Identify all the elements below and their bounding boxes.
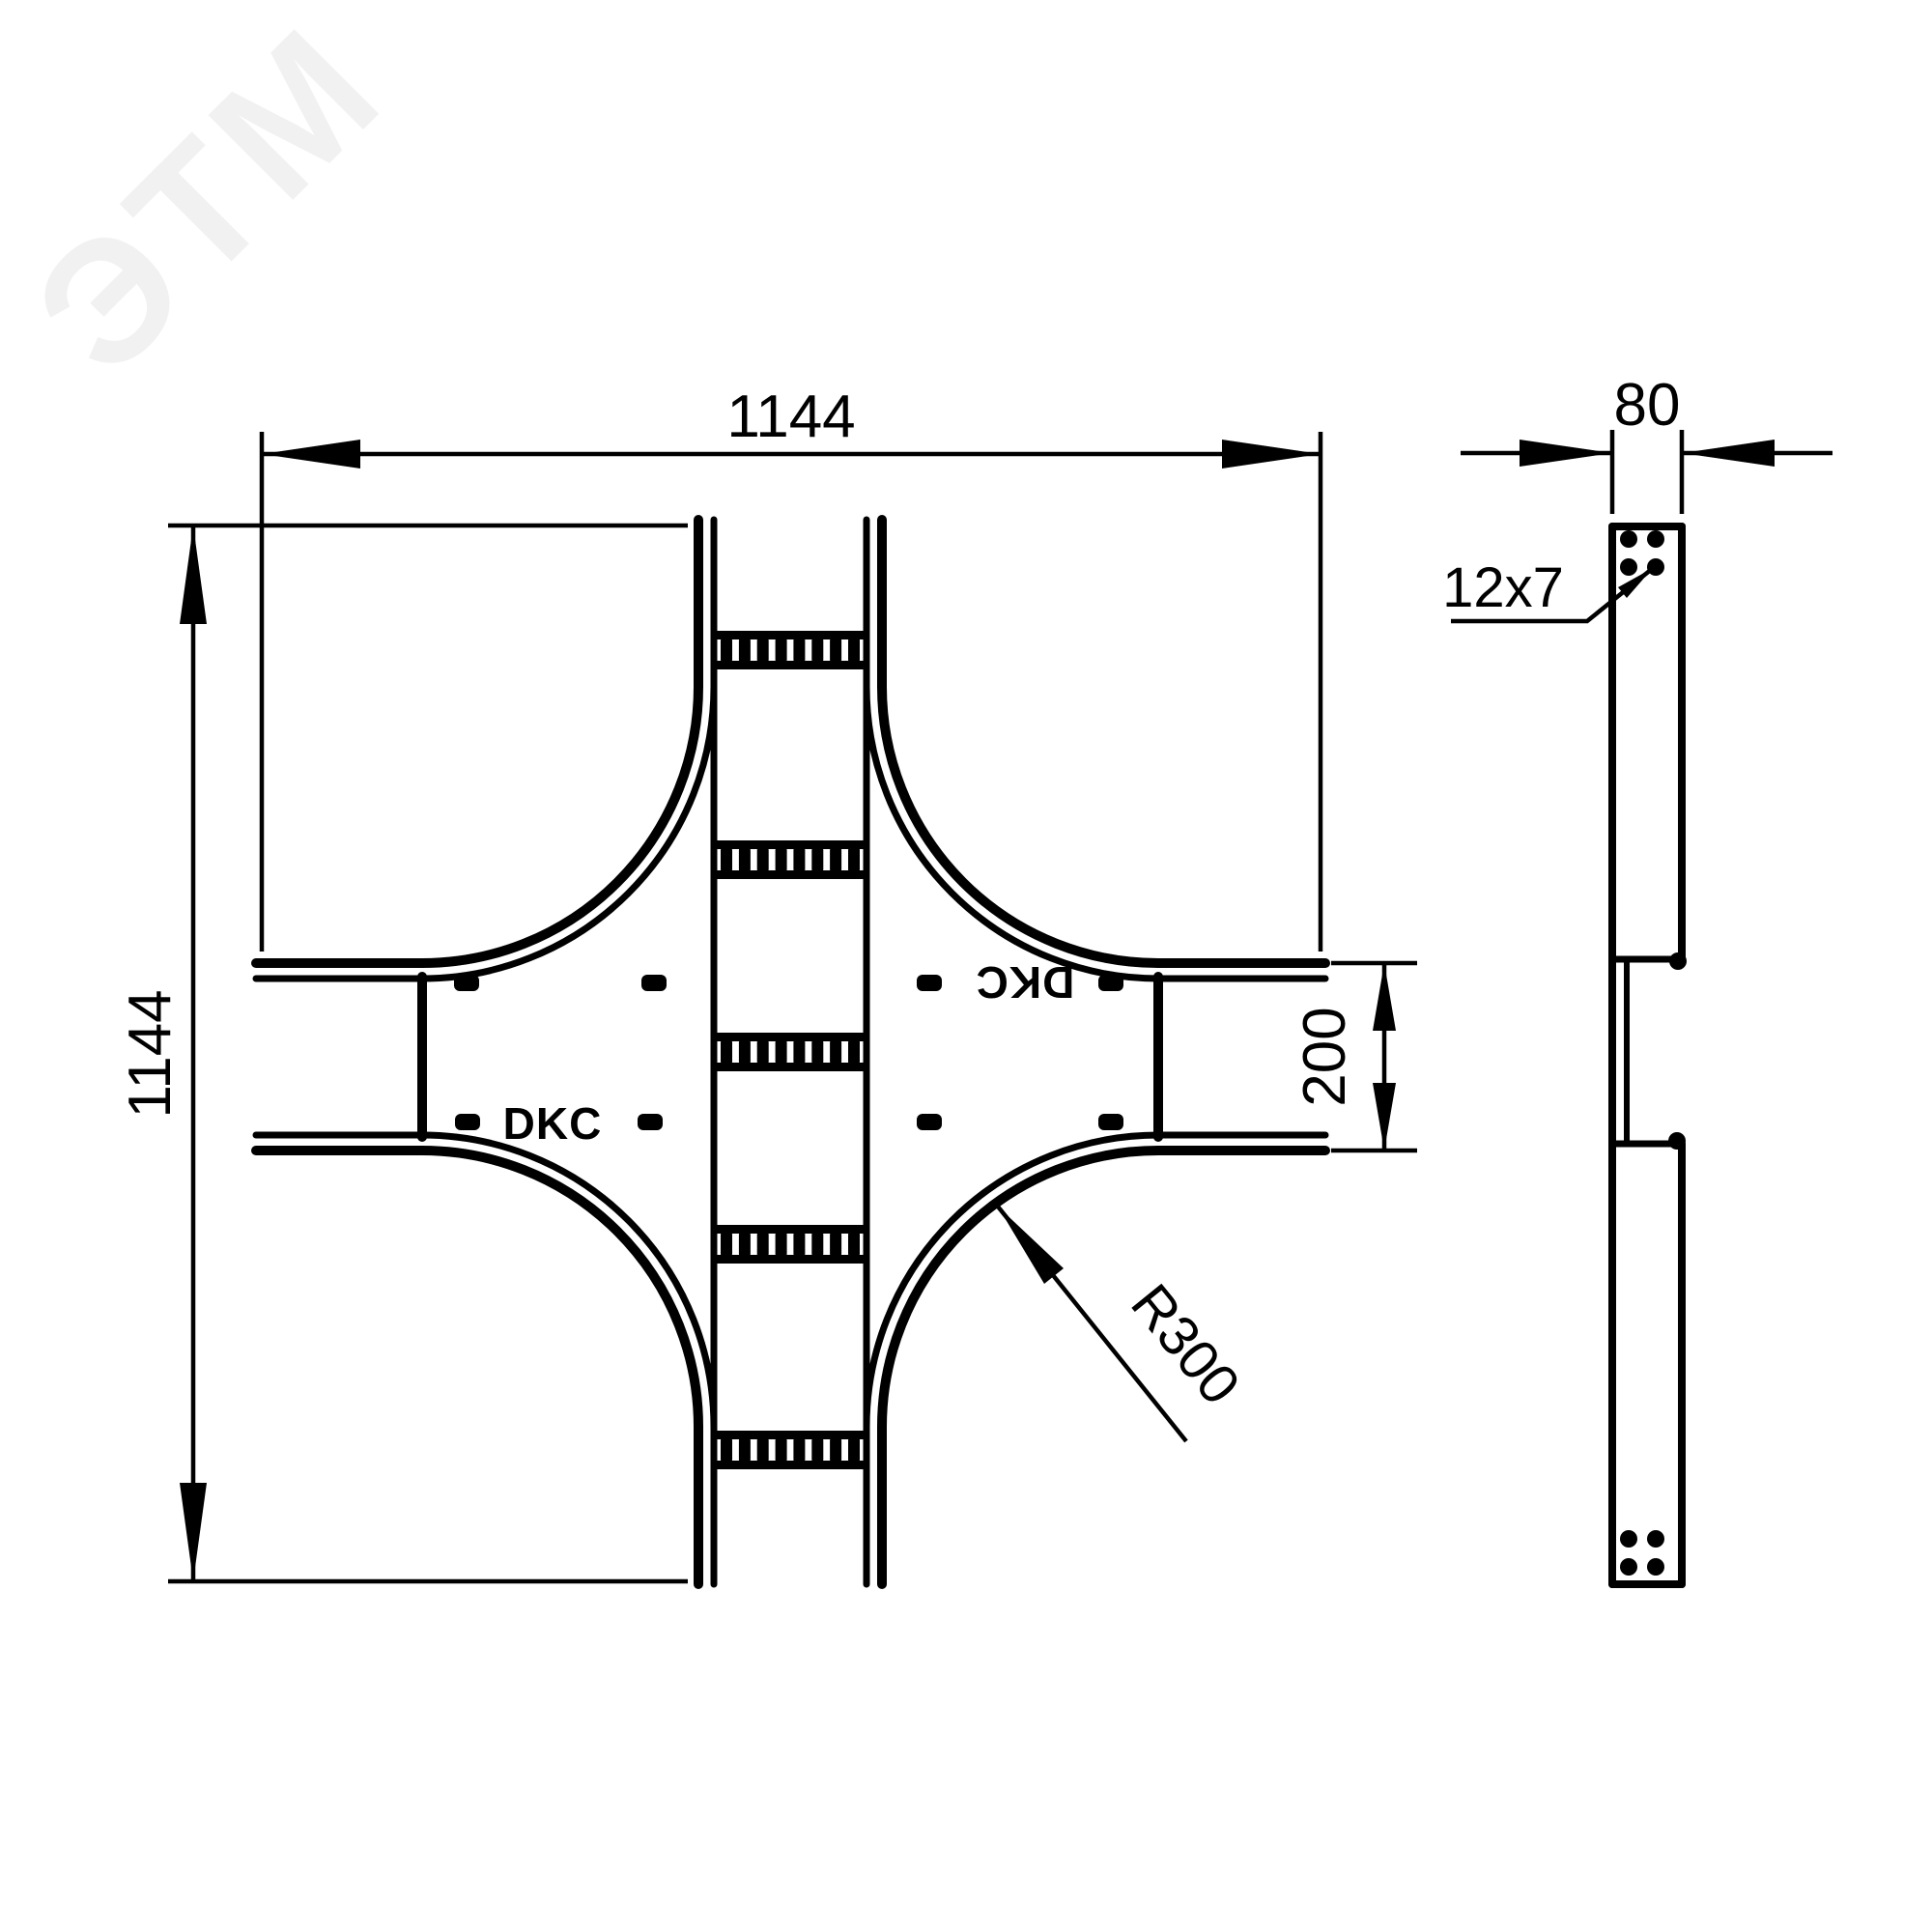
left-arm bbox=[256, 963, 422, 1151]
dim-label-overall-width: 1144 bbox=[726, 384, 855, 450]
dim-bend-radius: R300 bbox=[998, 1207, 1252, 1441]
dim-label-branch-width: 200 bbox=[1292, 1007, 1358, 1106]
dim-label-overall-height: 1144 bbox=[117, 989, 184, 1118]
dim-label-hole-slot: 12x7 bbox=[1442, 556, 1564, 619]
ladder-rungs bbox=[714, 631, 867, 1469]
dim-profile-depth: 80 bbox=[1461, 372, 1833, 514]
watermark-text: ЭТМ bbox=[0, 0, 420, 411]
top-view: DKC DKC 1144 1144 200 bbox=[117, 384, 1417, 1584]
dim-overall-height: 1144 bbox=[117, 526, 688, 1581]
side-view: 80 12x7 bbox=[1442, 372, 1833, 1584]
dkc-logo-rotated: DKC bbox=[976, 957, 1075, 1008]
dim-label-profile-depth: 80 bbox=[1614, 372, 1681, 439]
dim-label-bend-radius: R300 bbox=[1119, 1272, 1252, 1416]
fillet-curves bbox=[422, 687, 1158, 1427]
dkc-logo: DKC bbox=[503, 1098, 603, 1149]
profile-outline bbox=[1612, 526, 1687, 1584]
dim-branch-width: 200 bbox=[1292, 963, 1417, 1151]
cable-tray-cross-technical-drawing: ЭТМ bbox=[0, 0, 1932, 1932]
